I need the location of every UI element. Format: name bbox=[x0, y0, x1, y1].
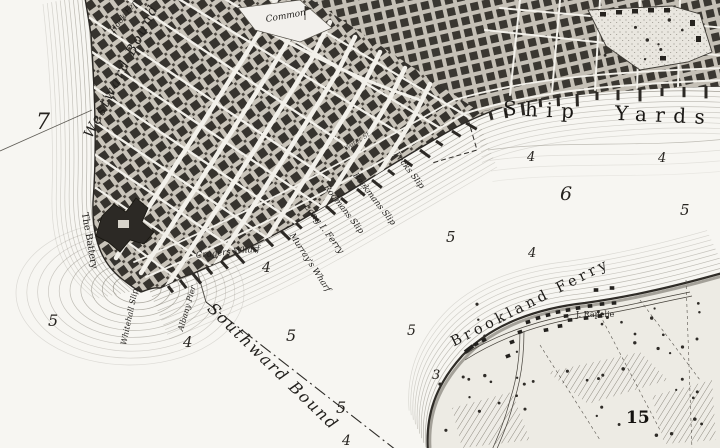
sounding: 5 bbox=[48, 313, 58, 329]
sounding: 4 bbox=[527, 151, 535, 164]
sounding: 5 bbox=[336, 400, 346, 416]
label-j-rapelje: J. Rapelje bbox=[576, 311, 614, 319]
sounding: 4 bbox=[262, 261, 271, 275]
sounding: 5 bbox=[680, 203, 690, 218]
sounding: 4 bbox=[658, 152, 666, 165]
sounding: 3 bbox=[432, 369, 440, 382]
label-parcel-15: 15 bbox=[626, 410, 650, 427]
sounding: 5 bbox=[286, 328, 296, 344]
channel-contours bbox=[488, 139, 720, 182]
historic-harbor-map: Ship Yards Brookland Ferry Southward Bou… bbox=[0, 0, 720, 448]
sounding: 4 bbox=[342, 434, 351, 448]
sounding: 5 bbox=[407, 324, 416, 338]
sounding: 5 bbox=[446, 230, 456, 245]
sounding: 4 bbox=[528, 247, 536, 260]
sounding: 4 bbox=[183, 335, 193, 350]
sounding: 6 bbox=[560, 185, 572, 204]
sounding: 7 bbox=[36, 112, 50, 134]
fort-parade-ground bbox=[118, 220, 129, 228]
